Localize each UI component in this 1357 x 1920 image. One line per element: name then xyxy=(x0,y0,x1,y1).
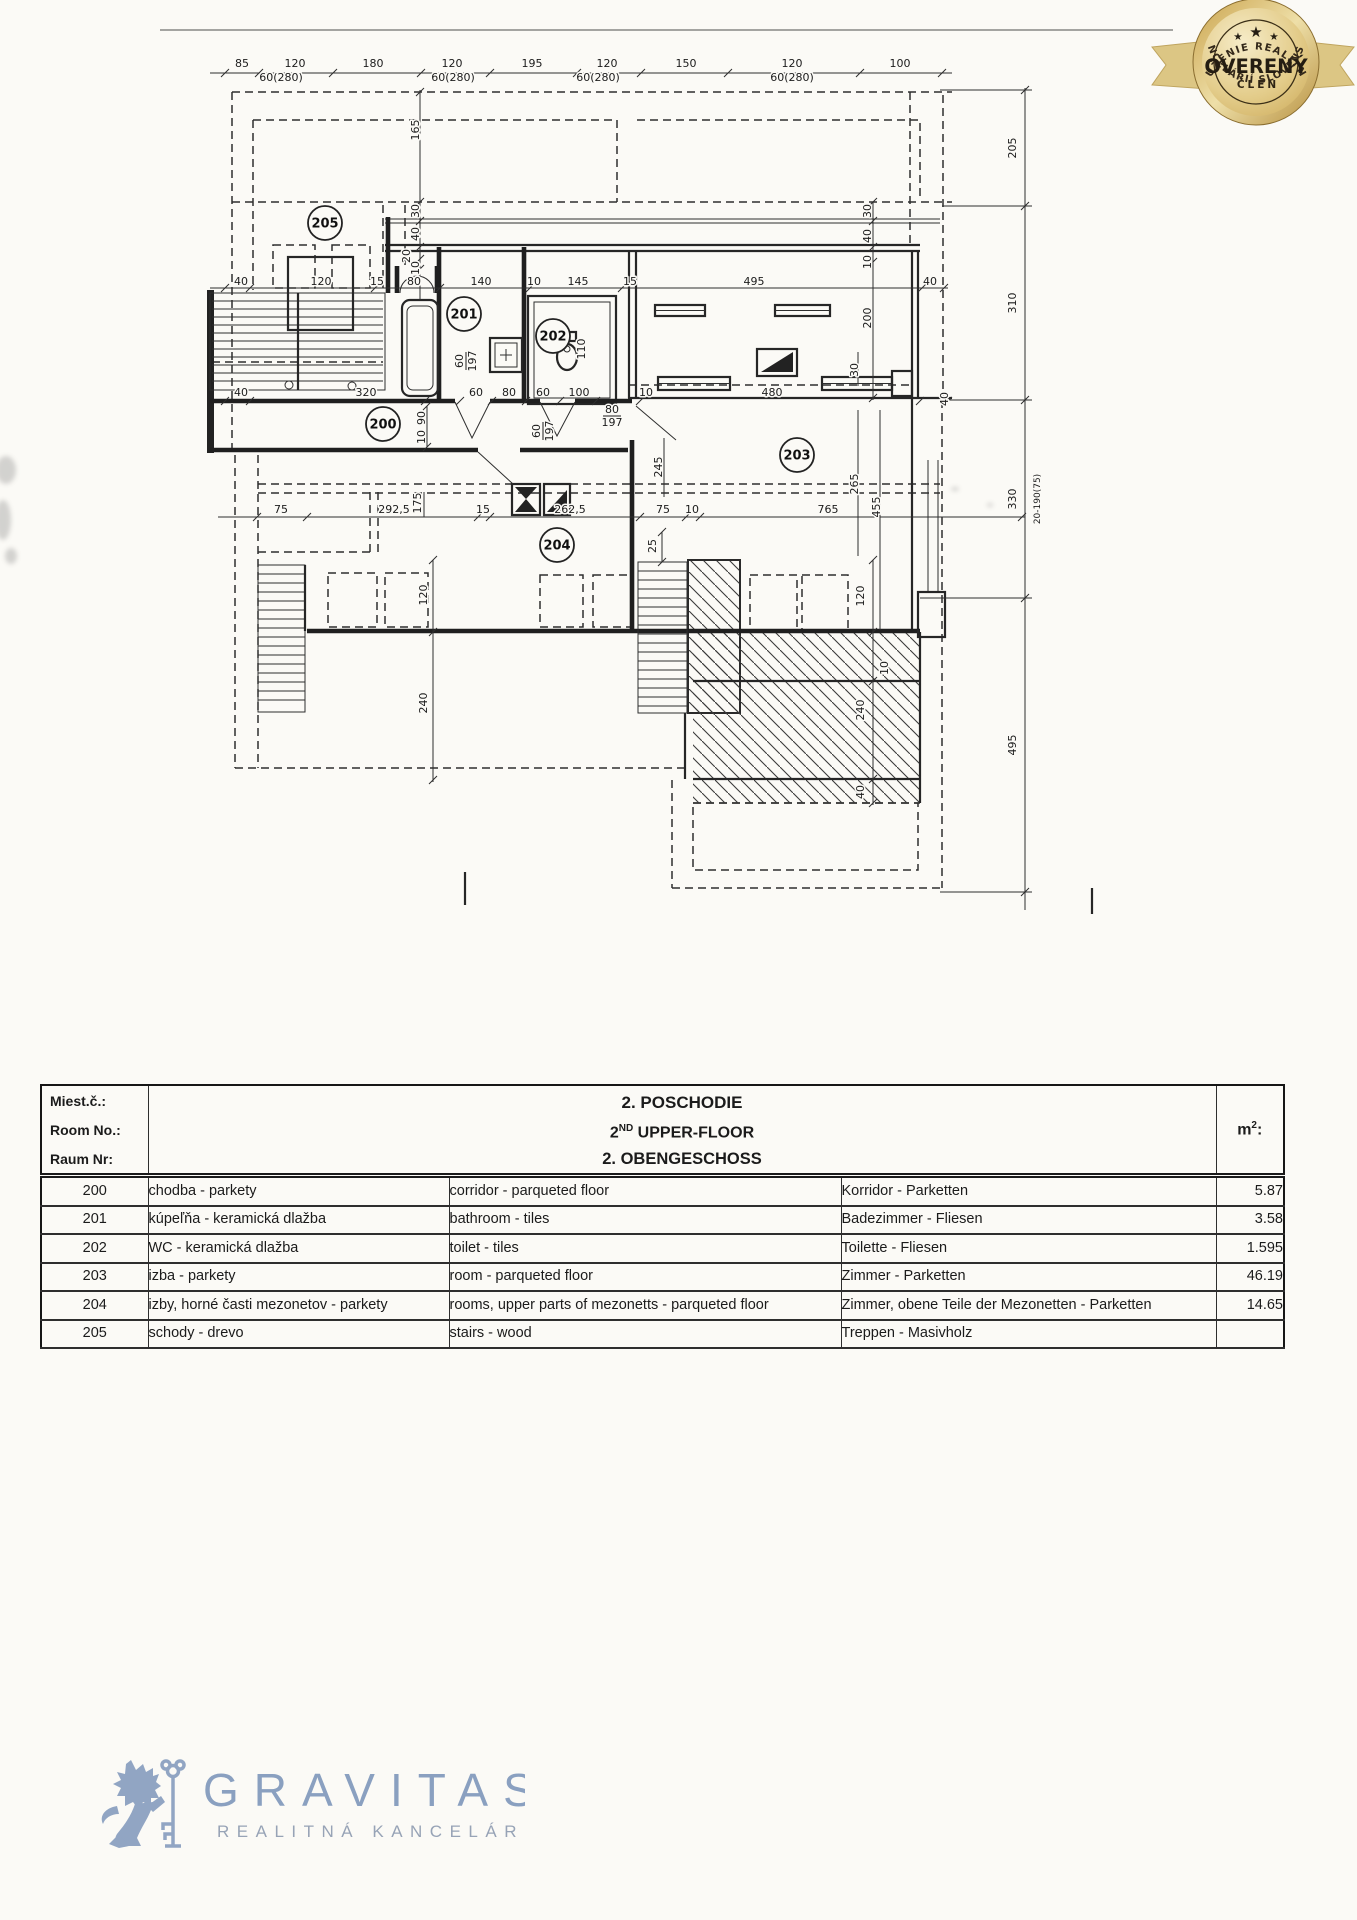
svg-text:120: 120 xyxy=(597,57,618,70)
svg-text:40: 40 xyxy=(861,229,874,243)
svg-text:202: 202 xyxy=(539,330,566,345)
dimension-label: 60197 xyxy=(453,351,479,372)
table-row: 202WC - keramická dlažbatoilet - tilesTo… xyxy=(41,1234,1284,1263)
dimension-label: 30 xyxy=(848,363,861,377)
svg-text:495: 495 xyxy=(744,275,765,288)
name-en: toilet - tiles xyxy=(449,1234,841,1263)
dimension-label: 180 xyxy=(363,57,384,70)
dimension-label: 15 xyxy=(476,503,490,516)
room-number-202: 202 xyxy=(536,319,570,353)
dimension-label: 120 xyxy=(597,57,618,70)
svg-text:60: 60 xyxy=(453,354,466,368)
header-floor-title: 2. POSCHODIE 2ND UPPER-FLOOR 2. OBENGESC… xyxy=(148,1085,1216,1176)
area-m2: 46.19 xyxy=(1216,1263,1284,1292)
svg-text:60: 60 xyxy=(530,424,543,438)
dimension-label: 40 xyxy=(854,785,867,799)
header-area-unit: m2: xyxy=(1216,1085,1284,1176)
svg-text:140: 140 xyxy=(471,275,492,288)
svg-text:205: 205 xyxy=(311,217,338,232)
dimension-label: 60(280) xyxy=(259,71,303,84)
dimension-label: 60 xyxy=(536,386,550,399)
dimension-label: 10 xyxy=(409,261,422,275)
svg-text:110: 110 xyxy=(575,339,588,360)
svg-text:40: 40 xyxy=(938,392,951,406)
dimension-label: 60(280) xyxy=(576,71,620,84)
svg-text:60: 60 xyxy=(536,386,550,399)
dimension-label: 110 xyxy=(575,339,588,360)
area-m2 xyxy=(1216,1320,1284,1349)
svg-text:15: 15 xyxy=(623,275,637,288)
dimension-label: 455 xyxy=(870,497,883,518)
name-de: Zimmer - Parketten xyxy=(841,1263,1216,1292)
dimension-label: 25 xyxy=(646,539,659,553)
svg-text:30: 30 xyxy=(848,363,861,377)
svg-text:145: 145 xyxy=(568,275,589,288)
dimension-label: 90 xyxy=(415,411,428,425)
dimension-label: 40 xyxy=(234,386,248,399)
svg-text:40: 40 xyxy=(409,227,422,241)
badge-subtitle: ČLEN xyxy=(1237,78,1279,91)
svg-text:20: 20 xyxy=(400,249,413,263)
dimension-label: 60(280) xyxy=(431,71,475,84)
svg-text:20-190(75): 20-190(75) xyxy=(1033,474,1043,524)
dimension-label: 140 xyxy=(471,275,492,288)
dimension-label: 30 xyxy=(861,204,874,218)
name-sk: kúpeľňa - keramická dlažba xyxy=(148,1206,449,1235)
star-icon: ★ xyxy=(1269,31,1279,43)
svg-text:165: 165 xyxy=(409,120,422,141)
hatched-roof-area xyxy=(688,560,920,803)
name-sk: schody - drevo xyxy=(148,1320,449,1349)
room-legend-table: Miest.č.: Room No.: Raum Nr: 2. POSCHODI… xyxy=(40,1084,1285,1349)
dimension-label: 75 xyxy=(274,503,288,516)
area-m2: 14.65 xyxy=(1216,1291,1284,1320)
svg-text:10: 10 xyxy=(409,261,422,275)
svg-text:40: 40 xyxy=(234,275,248,288)
svg-text:201: 201 xyxy=(450,308,477,323)
svg-text:180: 180 xyxy=(363,57,384,70)
dimension-label: 40 xyxy=(938,392,951,406)
header-room-no: Miest.č.: Room No.: Raum Nr: xyxy=(41,1085,148,1176)
svg-text:330: 330 xyxy=(1006,489,1019,510)
dimension-label: 330 xyxy=(1006,489,1019,510)
dimension-label: 10 xyxy=(878,661,891,675)
dimension-label: 40 xyxy=(234,275,248,288)
name-de: Treppen - Masivholz xyxy=(841,1320,1216,1349)
svg-text:120: 120 xyxy=(417,585,430,606)
door-swing xyxy=(636,406,676,440)
star-icon: ★ xyxy=(1249,24,1262,41)
svg-text:10: 10 xyxy=(685,503,699,516)
dimension-label: 80 xyxy=(407,275,421,288)
room-number-204: 204 xyxy=(540,528,574,562)
door-swing xyxy=(478,452,513,484)
table-header-row: Miest.č.: Room No.: Raum Nr: 2. POSCHODI… xyxy=(41,1085,1284,1176)
dimension-label: 80197 xyxy=(602,403,623,429)
svg-text:40: 40 xyxy=(234,386,248,399)
svg-text:80: 80 xyxy=(407,275,421,288)
dimension-label: 495 xyxy=(744,275,765,288)
dimension-label: 120 xyxy=(417,585,430,606)
name-en: room - parqueted floor xyxy=(449,1263,841,1292)
dimension-label: 10 xyxy=(415,430,428,444)
star-icon: ★ xyxy=(1233,31,1243,43)
table-row: 205schody - drevostairs - woodTreppen - … xyxy=(41,1320,1284,1349)
svg-text:15: 15 xyxy=(370,275,384,288)
svg-text:480: 480 xyxy=(762,386,783,399)
dimension-label: 120 xyxy=(782,57,803,70)
dimension-label: 40 xyxy=(409,227,422,241)
svg-text:85: 85 xyxy=(235,57,249,70)
svg-text:205: 205 xyxy=(1006,138,1019,159)
name-sk: izby, horné časti mezonetov - parkety xyxy=(148,1291,449,1320)
svg-text:262,5: 262,5 xyxy=(554,503,586,516)
name-en: bathroom - tiles xyxy=(449,1206,841,1235)
stairs-lower-left xyxy=(258,565,305,712)
dimension-label: 10 xyxy=(527,275,541,288)
dimension-label: 80 xyxy=(502,386,516,399)
dimension-label: 240 xyxy=(854,700,867,721)
dimension-label: 262,5 xyxy=(554,503,586,516)
area-m2: 5.87 xyxy=(1216,1176,1284,1206)
dimension-label: 20 xyxy=(400,249,413,263)
svg-text:60(280): 60(280) xyxy=(770,71,814,84)
dimension-label: 245 xyxy=(652,457,665,478)
dimension-label: 240 xyxy=(417,693,430,714)
svg-text:15: 15 xyxy=(476,503,490,516)
dimension-label: 100 xyxy=(890,57,911,70)
name-sk: izba - parkety xyxy=(148,1263,449,1292)
room-no: 202 xyxy=(41,1234,148,1263)
svg-text:203: 203 xyxy=(783,449,810,464)
dimension-label: 200 xyxy=(861,308,874,329)
dimension-label: 10 xyxy=(639,386,653,399)
dimension-label: 40 xyxy=(923,275,937,288)
svg-text:25: 25 xyxy=(646,539,659,553)
svg-text:10: 10 xyxy=(878,661,891,675)
dimension-label: 100 xyxy=(569,386,590,399)
stairs-center xyxy=(638,562,687,713)
name-de: Zimmer, obene Teile der Mezonetten - Par… xyxy=(841,1291,1216,1320)
svg-text:80: 80 xyxy=(605,403,619,416)
svg-text:765: 765 xyxy=(818,503,839,516)
dimension-label: 145 xyxy=(568,275,589,288)
dimension-label: 205 xyxy=(1006,138,1019,159)
scan-smudges xyxy=(0,456,993,564)
room-number-205: 205 xyxy=(308,206,342,240)
svg-text:200: 200 xyxy=(369,418,396,433)
svg-text:10: 10 xyxy=(861,255,874,269)
area-m2: 1.595 xyxy=(1216,1234,1284,1263)
name-de: Toilette - Fliesen xyxy=(841,1234,1216,1263)
badge-title: OVERENÝ xyxy=(1204,54,1308,78)
dimension-label: 15 xyxy=(370,275,384,288)
svg-text:265: 265 xyxy=(848,474,861,495)
svg-text:60(280): 60(280) xyxy=(259,71,303,84)
room-no: 201 xyxy=(41,1206,148,1235)
name-en: stairs - wood xyxy=(449,1320,841,1349)
lion-with-key-icon xyxy=(102,1760,184,1848)
dimension-label: 292,5 xyxy=(378,503,410,516)
room-no: 205 xyxy=(41,1320,148,1349)
svg-text:100: 100 xyxy=(890,57,911,70)
svg-text:10: 10 xyxy=(527,275,541,288)
svg-text:60: 60 xyxy=(469,386,483,399)
svg-text:245: 245 xyxy=(652,457,665,478)
svg-text:200: 200 xyxy=(861,308,874,329)
page-marks xyxy=(465,872,1092,914)
svg-text:40: 40 xyxy=(854,785,867,799)
table-row: 201kúpeľňa - keramická dlažbabathroom - … xyxy=(41,1206,1284,1235)
svg-text:240: 240 xyxy=(417,693,430,714)
svg-text:60(280): 60(280) xyxy=(431,71,475,84)
dimension-label: 15 xyxy=(623,275,637,288)
dimension-label: 150 xyxy=(676,57,697,70)
name-en: rooms, upper parts of mezonetts - parque… xyxy=(449,1291,841,1320)
dimension-label: 320 xyxy=(356,386,377,399)
room-no: 203 xyxy=(41,1263,148,1292)
svg-text:120: 120 xyxy=(854,586,867,607)
svg-text:197: 197 xyxy=(602,416,623,429)
name-de: Badezimmer - Fliesen xyxy=(841,1206,1216,1235)
table-row: 200chodba - parketycorridor - parqueted … xyxy=(41,1176,1284,1206)
svg-text:75: 75 xyxy=(274,503,288,516)
table-row: 203izba - parketyroom - parqueted floorZ… xyxy=(41,1263,1284,1292)
table-row: 204izby, horné časti mezonetov - parkety… xyxy=(41,1291,1284,1320)
dimension-label: 60(280) xyxy=(770,71,814,84)
dimension-label: 480 xyxy=(762,386,783,399)
floor-plan-drawing: 8512018012019512015012010060(280)60(280)… xyxy=(0,0,1357,1920)
name-sk: WC - keramická dlažba xyxy=(148,1234,449,1263)
svg-text:310: 310 xyxy=(1006,293,1019,314)
svg-text:90: 90 xyxy=(415,411,428,425)
verified-member-badge: ZDRUŽENIE REALITNÝCH KANCELÁRIÍ SLOVENSK… xyxy=(1146,0,1357,133)
svg-text:120: 120 xyxy=(285,57,306,70)
dimension-label: 120 xyxy=(311,275,332,288)
svg-text:10: 10 xyxy=(415,430,428,444)
dimension-label: 85 xyxy=(235,57,249,70)
svg-text:120: 120 xyxy=(311,275,332,288)
dimension-label: 10 xyxy=(861,255,874,269)
dimension-label: 120 xyxy=(285,57,306,70)
dimension-label: 195 xyxy=(522,57,543,70)
dimension-label: 10 xyxy=(685,503,699,516)
svg-text:120: 120 xyxy=(782,57,803,70)
dimension-label: 75 xyxy=(656,503,670,516)
brand-tagline: REALITNÁ KANCELÁRIA xyxy=(217,1822,525,1841)
svg-text:197: 197 xyxy=(466,351,479,372)
svg-text:455: 455 xyxy=(870,497,883,518)
dimension-label: 310 xyxy=(1006,293,1019,314)
dimension-label: 120 xyxy=(442,57,463,70)
dimension-label: 20-190(75) xyxy=(1033,474,1043,524)
svg-text:240: 240 xyxy=(854,700,867,721)
dimension-label: 765 xyxy=(818,503,839,516)
scanned-floorplan-page: { "badge": { "arc_top": "ZDRUŽENIE REALI… xyxy=(0,0,1357,1920)
dimension-label: 40 xyxy=(861,229,874,243)
svg-text:40: 40 xyxy=(923,275,937,288)
dimension-label: 60197 xyxy=(530,421,556,442)
svg-text:80: 80 xyxy=(502,386,516,399)
name-en: corridor - parqueted floor xyxy=(449,1176,841,1206)
svg-text:197: 197 xyxy=(543,421,556,442)
svg-text:30: 30 xyxy=(409,204,422,218)
company-logo: GRAVITAS REALITNÁ KANCELÁRIA xyxy=(95,1758,525,1858)
dimension-label: 120 xyxy=(854,586,867,607)
svg-text:195: 195 xyxy=(522,57,543,70)
svg-text:120: 120 xyxy=(442,57,463,70)
svg-text:292,5: 292,5 xyxy=(378,503,410,516)
room-no: 200 xyxy=(41,1176,148,1206)
svg-text:495: 495 xyxy=(1006,735,1019,756)
svg-text:204: 204 xyxy=(543,539,570,554)
room-number-203: 203 xyxy=(780,438,814,472)
svg-text:175: 175 xyxy=(411,493,424,514)
room-number-200: 200 xyxy=(366,407,400,441)
svg-text:75: 75 xyxy=(656,503,670,516)
dimension-label: 165 xyxy=(409,120,422,141)
svg-text:150: 150 xyxy=(676,57,697,70)
name-de: Korridor - Parketten xyxy=(841,1176,1216,1206)
svg-text:100: 100 xyxy=(569,386,590,399)
dimension-label: 495 xyxy=(1006,735,1019,756)
dimension-label: 60 xyxy=(469,386,483,399)
windows-and-fixtures xyxy=(402,300,912,515)
svg-text:60(280): 60(280) xyxy=(576,71,620,84)
svg-text:10: 10 xyxy=(639,386,653,399)
brand-name: GRAVITAS xyxy=(203,1764,525,1816)
area-m2: 3.58 xyxy=(1216,1206,1284,1235)
dimension-label: 30 xyxy=(409,204,422,218)
door-swing xyxy=(455,402,490,438)
dimension-label: 265 xyxy=(848,474,861,495)
room-no: 204 xyxy=(41,1291,148,1320)
room-number-201: 201 xyxy=(447,297,481,331)
dimension-label: 175 xyxy=(411,493,424,514)
svg-text:30: 30 xyxy=(861,204,874,218)
svg-text:320: 320 xyxy=(356,386,377,399)
name-sk: chodba - parkety xyxy=(148,1176,449,1206)
